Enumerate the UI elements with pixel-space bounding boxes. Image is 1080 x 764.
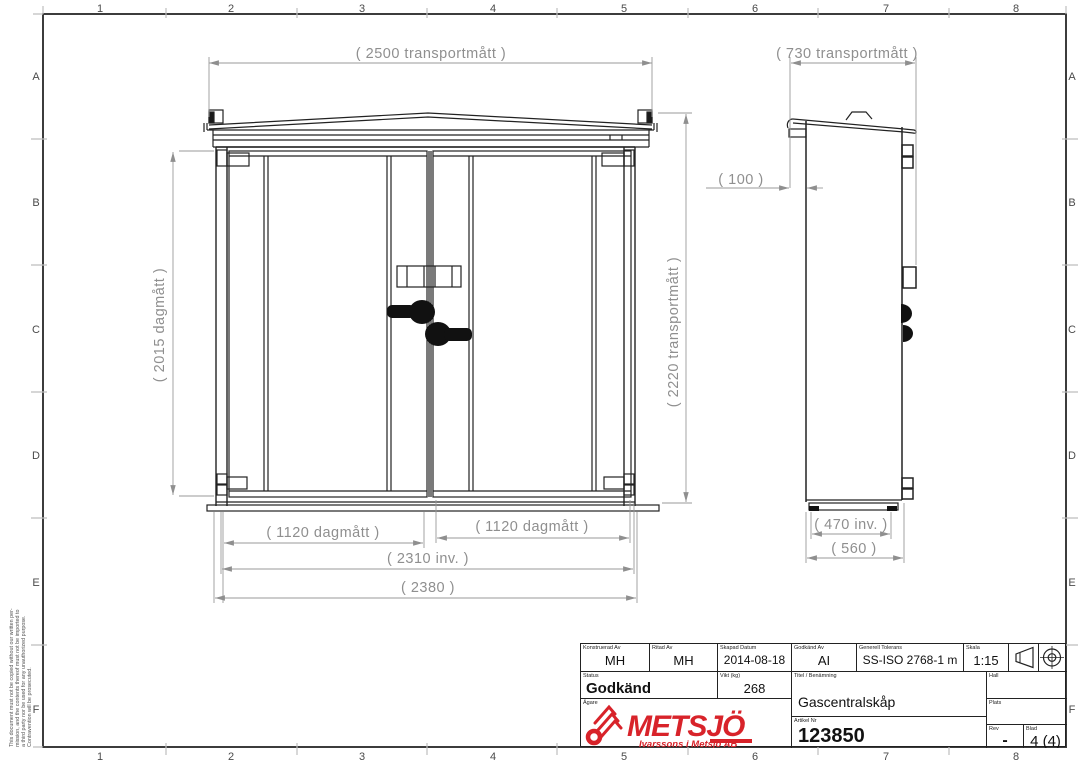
field-label: Vikt (kg) bbox=[720, 673, 740, 679]
dim-side-outer-depth: ( 560 ) bbox=[831, 541, 876, 557]
field-skala: Skala 1:15 bbox=[963, 644, 1008, 671]
grid-col-label: 7 bbox=[883, 3, 889, 15]
field-value: AI bbox=[792, 653, 856, 668]
field-label: Artikel Nr bbox=[794, 718, 817, 724]
grid-col-label: 4 bbox=[490, 751, 496, 763]
field-hall: Hall bbox=[986, 671, 1067, 698]
field-value: MH bbox=[650, 653, 717, 668]
grid-row-label: D bbox=[32, 450, 40, 462]
dim-side-roof-offset: ( 100 ) bbox=[718, 172, 763, 188]
field-ritad-av: Ritad Av MH bbox=[649, 644, 717, 671]
side-base bbox=[806, 500, 902, 511]
grid-row-label: B bbox=[1068, 197, 1075, 209]
field-godkand-av: Godkänd Av AI bbox=[791, 644, 856, 671]
dim-front-total-height: ( 2220 transportmått ) bbox=[666, 257, 682, 407]
first-angle-projection-circle-icon bbox=[1039, 644, 1064, 671]
cabinet-side-view bbox=[787, 112, 916, 511]
field-skapad-datum: Skapad Datum 2014-08-18 bbox=[717, 644, 791, 671]
field-plats: Plats bbox=[986, 698, 1067, 724]
field-blad: Blad 4 (4) bbox=[1023, 724, 1067, 748]
grid-row-label: E bbox=[1068, 577, 1075, 589]
field-label: Skala bbox=[966, 645, 980, 651]
front-roof bbox=[207, 113, 654, 147]
grid-row-label: F bbox=[33, 704, 40, 716]
field-vikt: Vikt (kg) 268 bbox=[717, 671, 791, 698]
dim-outer-width: ( 2380 ) bbox=[401, 580, 455, 596]
drawing-sheet: 1 2 3 4 5 6 7 8 1 2 3 4 5 6 7 8 A B C D … bbox=[0, 0, 1080, 764]
dim-door-right-opening: ( 1120 dagmått ) bbox=[475, 519, 588, 535]
side-latch-handles bbox=[901, 304, 913, 342]
field-konstruerad-av: Konstruerad Av MH bbox=[581, 644, 649, 671]
title-block: Konstruerad Av MH Ritad Av MH Skapad Dat… bbox=[580, 643, 1066, 747]
field-label: Ritad Av bbox=[652, 645, 672, 651]
first-angle-projection-cone-icon bbox=[1009, 644, 1038, 671]
projection-circle-cell bbox=[1038, 644, 1064, 671]
dim-side-inner-depth: ( 470 inv. ) bbox=[814, 517, 887, 533]
grid-col-label: 4 bbox=[490, 3, 496, 15]
field-value: 268 bbox=[718, 681, 791, 696]
disclaimer-line: Contravention will be prosecuted. bbox=[27, 581, 33, 747]
grid-row-label: D bbox=[1068, 450, 1076, 462]
grid-col-label: 5 bbox=[621, 751, 627, 763]
field-value: 2014-08-18 bbox=[718, 653, 791, 667]
front-frame bbox=[216, 147, 635, 506]
dim-inner-width: ( 2310 inv. ) bbox=[387, 551, 469, 567]
field-label: Hall bbox=[989, 673, 998, 679]
grid-row-label: E bbox=[32, 577, 39, 589]
field-value: 1:15 bbox=[964, 653, 1008, 668]
field-value: Gascentralskåp bbox=[792, 694, 986, 710]
field-label: Blad bbox=[1026, 726, 1037, 732]
dim-front-opening-height: ( 2015 dagmått ) bbox=[152, 268, 168, 382]
grid-col-label: 1 bbox=[97, 751, 103, 763]
field-label: Plats bbox=[989, 700, 1001, 706]
dim-side-width: ( 730 transportmått ) bbox=[776, 46, 918, 62]
grid-row-label: A bbox=[32, 71, 40, 83]
grid-col-label: 3 bbox=[359, 751, 365, 763]
front-door-left bbox=[229, 151, 427, 497]
grid-col-label: 3 bbox=[359, 3, 365, 15]
field-value: SS-ISO 2768-1 m bbox=[857, 653, 963, 667]
field-status: Status Godkänd bbox=[581, 671, 717, 698]
grid-col-label: 6 bbox=[752, 3, 758, 15]
side-handle-plate bbox=[903, 267, 916, 288]
grid-col-label: 2 bbox=[228, 751, 234, 763]
grid-col-label: 8 bbox=[1013, 751, 1019, 763]
grid-col-label: 8 bbox=[1013, 3, 1019, 15]
logo-subtitle: Ivarssons i Metsjö AB bbox=[639, 739, 738, 748]
grid-row-label: F bbox=[1069, 704, 1076, 716]
front-door-gap bbox=[429, 151, 431, 497]
field-value: 4 (4) bbox=[1024, 733, 1067, 748]
grid-col-label: 5 bbox=[621, 3, 627, 15]
cabinet-front-view bbox=[204, 110, 659, 511]
field-label: Generell Tolerans bbox=[859, 645, 902, 651]
field-value: Godkänd bbox=[581, 680, 717, 697]
grid-row-label: A bbox=[1068, 71, 1076, 83]
side-roof-bracket bbox=[846, 112, 872, 120]
grid-row-label: C bbox=[32, 324, 40, 336]
field-rev: Rev - bbox=[986, 724, 1023, 748]
copyright-disclaimer: This document must not be copied without… bbox=[9, 581, 33, 747]
grid-labels-left: A B C D E F bbox=[32, 71, 40, 716]
field-agare-logo: Ägare METSJÖ Ivarssons i Metsjö AB bbox=[581, 698, 791, 748]
field-label: Status bbox=[583, 673, 599, 679]
grid-labels-right: A B C D E F bbox=[1068, 71, 1076, 716]
field-value: MH bbox=[581, 653, 649, 668]
grid-row-label: B bbox=[32, 197, 39, 209]
grid-col-label: 6 bbox=[752, 751, 758, 763]
field-label: Titel / Benämning bbox=[794, 673, 837, 679]
field-value: - bbox=[987, 732, 1023, 748]
grid-col-label: 1 bbox=[97, 3, 103, 15]
metsjo-logo: METSJÖ Ivarssons i Metsjö AB bbox=[583, 703, 789, 748]
front-base bbox=[207, 502, 659, 511]
front-door-right bbox=[433, 151, 631, 497]
projection-cone-cell bbox=[1008, 644, 1038, 671]
grid-col-label: 2 bbox=[228, 3, 234, 15]
field-label: Konstruerad Av bbox=[583, 645, 621, 651]
field-label: Skapad Datum bbox=[720, 645, 756, 651]
field-artikel-nr: Artikel Nr 123850 bbox=[791, 716, 986, 748]
grid-row-label: C bbox=[1068, 324, 1076, 336]
grid-col-label: 7 bbox=[883, 751, 889, 763]
field-titel-benamning: Titel / Benämning Gascentralskåp bbox=[791, 671, 986, 716]
grid-labels-bottom: 1 2 3 4 5 6 7 8 bbox=[97, 751, 1019, 763]
dim-front-width: ( 2500 transportmått ) bbox=[356, 46, 506, 62]
field-value: 123850 bbox=[792, 725, 986, 748]
field-label: Godkänd Av bbox=[794, 645, 824, 651]
field-generell-tolerans: Generell Tolerans SS-ISO 2768-1 m bbox=[856, 644, 963, 671]
dim-door-left-opening: ( 1120 dagmått ) bbox=[266, 525, 379, 541]
side-vent-pipe bbox=[789, 129, 806, 137]
metsjo-tree-icon bbox=[588, 707, 621, 743]
